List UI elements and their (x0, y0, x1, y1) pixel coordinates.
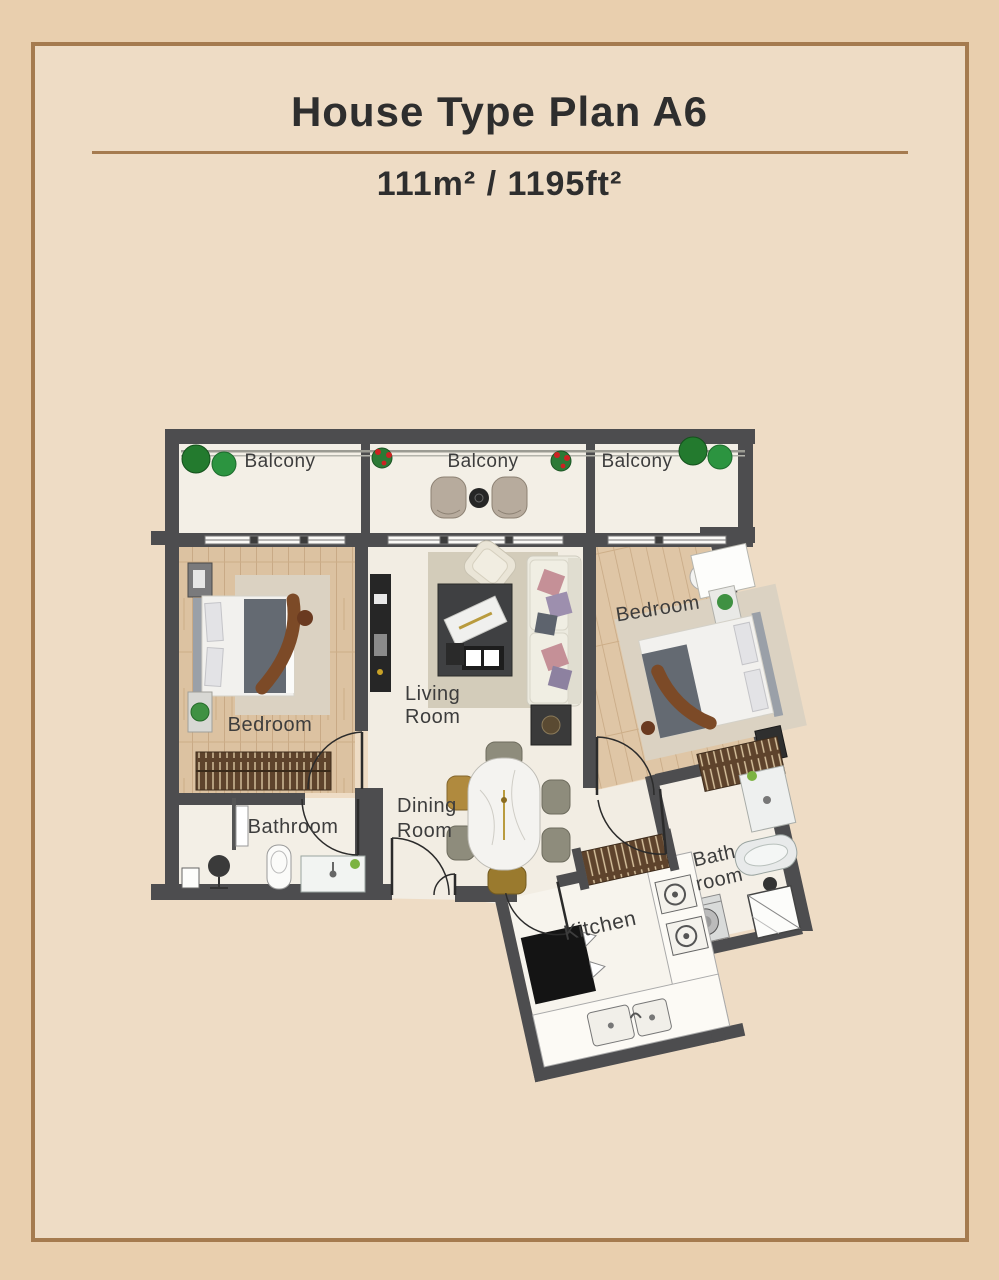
shower-tray (182, 868, 199, 888)
dining-chair (542, 780, 570, 814)
living-label-2: Room (405, 706, 460, 728)
vase (297, 610, 313, 626)
pedestal-stool (208, 855, 230, 877)
shower (748, 886, 800, 938)
floor-plan: Balcony Balcony Balcony Bedroom Living R… (140, 415, 820, 1105)
windows (205, 536, 726, 544)
area-subtitle: 111m² / 1195ft² (0, 165, 999, 204)
dining-chair (542, 828, 570, 862)
dining-label-1: Dining (397, 795, 457, 817)
sofa (527, 556, 581, 706)
bed (193, 596, 294, 696)
living-label-1: Living (405, 683, 460, 705)
page: House Type Plan A6 111m² / 1195ft² (0, 0, 999, 1280)
balcony-table (469, 488, 489, 508)
page-title: House Type Plan A6 (0, 88, 999, 136)
bathroom-left-label: Bathroom (248, 816, 339, 838)
vase (641, 721, 655, 735)
balcony-right-label: Balcony (601, 451, 672, 472)
stool (446, 643, 464, 665)
balcony-middle-label: Balcony (447, 451, 518, 472)
title-divider (92, 151, 908, 154)
bedroom-left-label: Bedroom (228, 714, 313, 736)
toilet (267, 845, 291, 889)
dining-label-2: Room (397, 820, 452, 842)
balcony-left-label: Balcony (244, 451, 315, 472)
